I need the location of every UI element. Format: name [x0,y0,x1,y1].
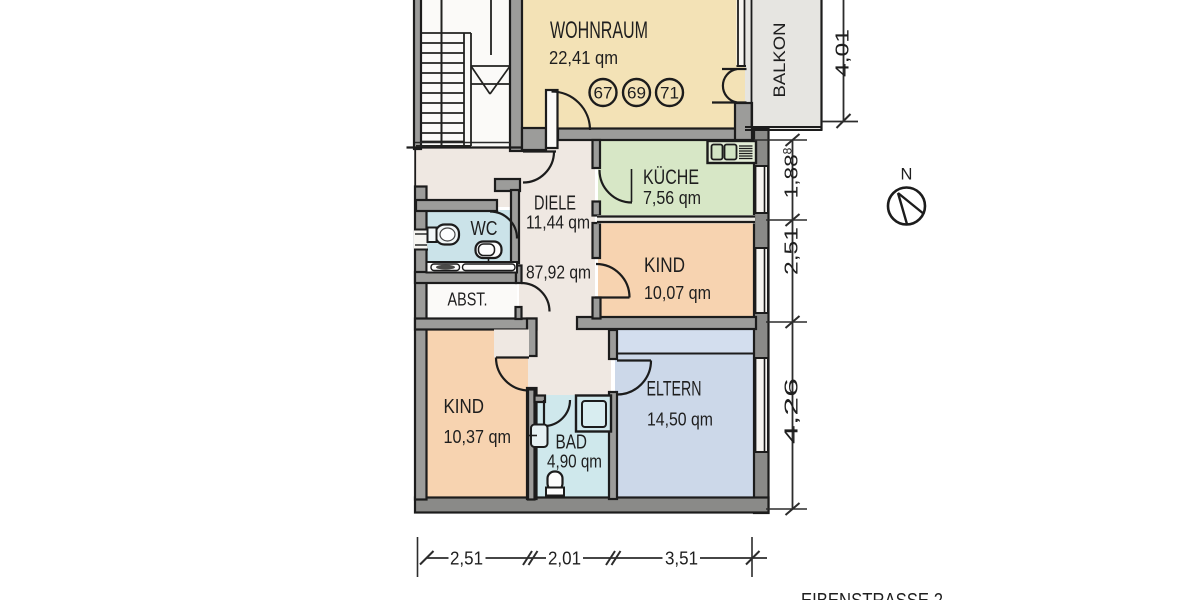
svg-text:KIND: KIND [644,254,685,277]
svg-text:1,888: 1,888 [781,147,802,198]
svg-text:ABST.: ABST. [448,289,488,310]
svg-text:22,41 qm: 22,41 qm [549,47,618,68]
svg-text:KÜCHE: KÜCHE [643,166,699,189]
svg-text:4,01: 4,01 [833,29,853,77]
svg-text:4,90 qm: 4,90 qm [547,451,602,472]
svg-text:87,92 qm: 87,92 qm [526,262,591,283]
svg-text:71: 71 [660,84,679,103]
svg-text:WOHNRAUM: WOHNRAUM [550,17,648,44]
svg-text:3,51: 3,51 [665,548,698,569]
svg-text:2,51: 2,51 [450,548,483,569]
svg-text:KIND: KIND [444,395,485,418]
svg-text:EIBENSTRASSE 2: EIBENSTRASSE 2 [801,589,943,600]
svg-text:N: N [901,166,913,184]
svg-text:7,56 qm: 7,56 qm [643,187,701,208]
svg-text:BALKON: BALKON [770,23,789,98]
svg-text:2,01: 2,01 [548,548,581,569]
svg-text:4,26: 4,26 [782,378,802,444]
svg-text:14,50 qm: 14,50 qm [647,409,713,430]
svg-text:ELTERN: ELTERN [647,378,702,401]
svg-text:10,07 qm: 10,07 qm [644,282,711,303]
svg-text:10,37 qm: 10,37 qm [444,426,512,447]
svg-text:WC: WC [471,217,498,240]
svg-text:69: 69 [627,84,646,103]
svg-text:2,51: 2,51 [782,227,802,275]
svg-text:11,44 qm: 11,44 qm [526,212,590,233]
svg-text:67: 67 [594,84,613,103]
